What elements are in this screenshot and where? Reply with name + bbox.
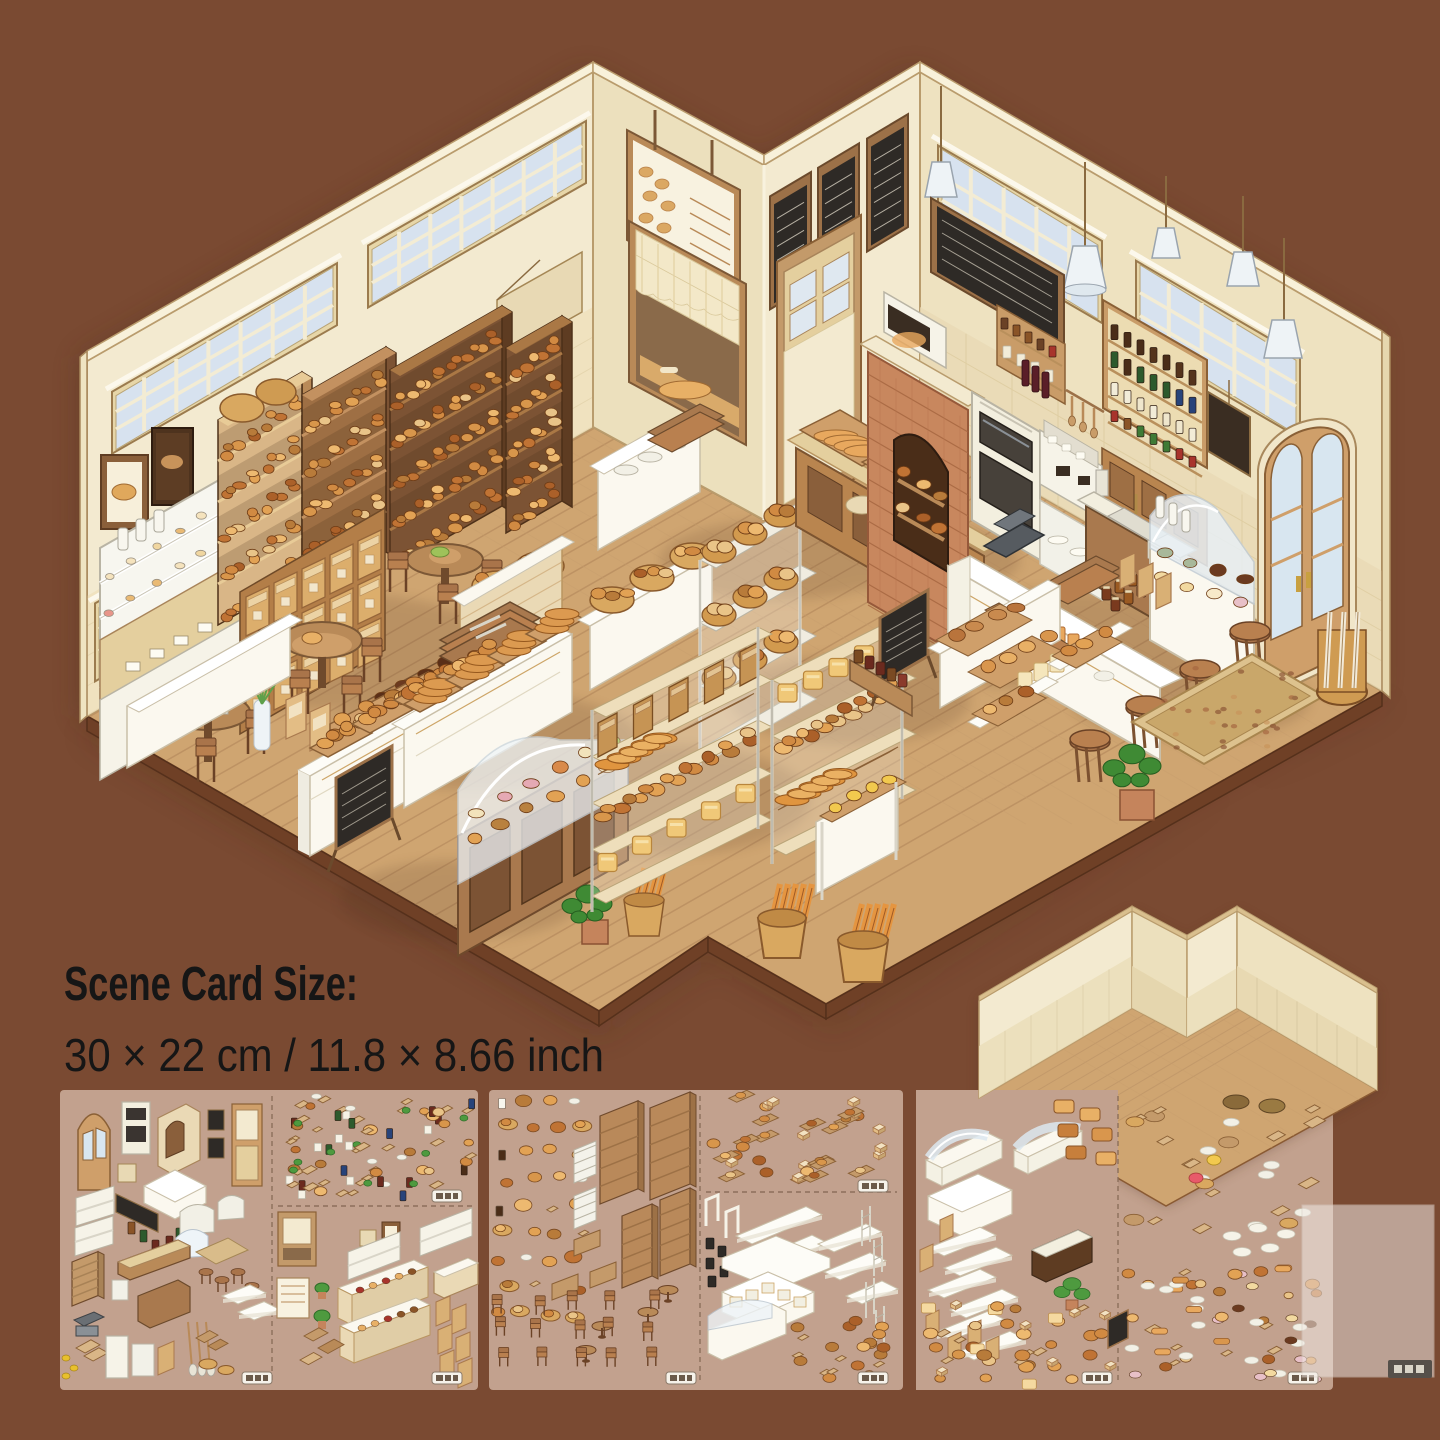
svg-text:Scene Card Size:: Scene Card Size: bbox=[64, 958, 358, 1011]
svg-text:30 × 22 cm / 11.8 × 8.66 inch: 30 × 22 cm / 11.8 × 8.66 inch bbox=[64, 1029, 604, 1081]
